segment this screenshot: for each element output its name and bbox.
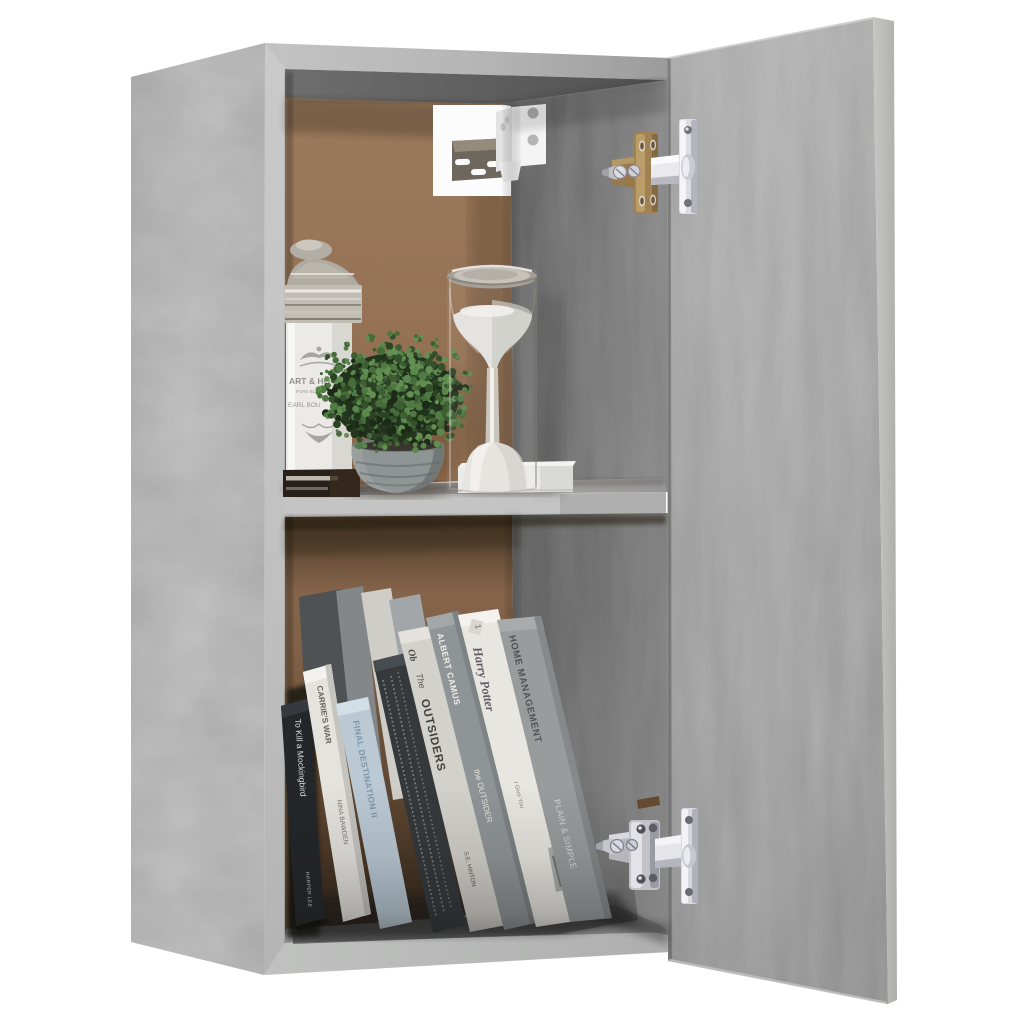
svg-text:ART & HO: ART & HO <box>289 376 330 386</box>
svg-text:EARL BOU: EARL BOU <box>288 402 321 409</box>
